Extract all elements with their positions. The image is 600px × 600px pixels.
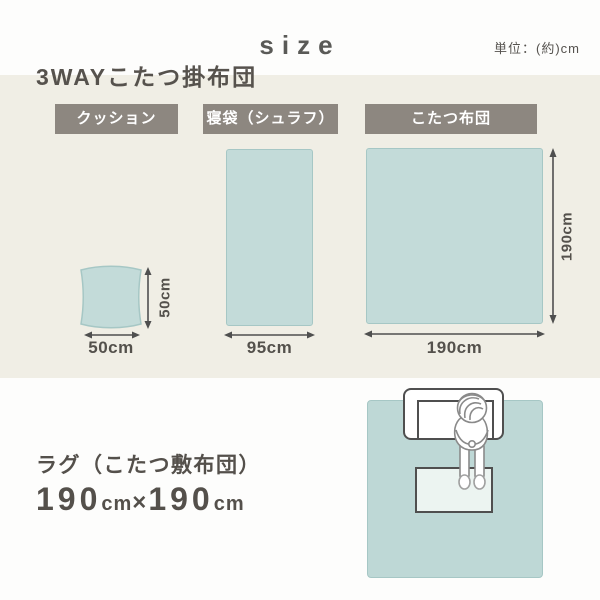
cushion-illustration bbox=[77, 265, 145, 329]
sleeping-bag-illustration bbox=[226, 149, 313, 326]
sleeping-bag-width-dimension: 95cm bbox=[226, 338, 313, 358]
rug-height-unit: cm bbox=[214, 493, 245, 515]
futon-height-dimension-arrow bbox=[548, 148, 558, 324]
rug-width-value: 190 bbox=[36, 481, 101, 517]
rug-size-separator: × bbox=[132, 489, 148, 516]
kotatsu-futon-label-badge: こたつ布団 bbox=[365, 104, 537, 134]
unit-note: 単位：(約)cm bbox=[494, 38, 580, 57]
futon-height-dimension: 190cm bbox=[559, 207, 576, 267]
kotatsu-futon-illustration bbox=[366, 148, 543, 324]
rug-section-heading: ラグ（こたつ敷布団） bbox=[36, 449, 261, 479]
person-sitting-illustration bbox=[443, 390, 501, 492]
size-infographic-page: size 単位：(約)cm 3WAYこたつ掛布団 クッション 寝袋（シュラフ） … bbox=[0, 0, 600, 600]
cushion-label-badge: クッション bbox=[55, 104, 178, 134]
futon-width-dimension: 190cm bbox=[366, 338, 543, 358]
cushion-height-dimension: 50cm bbox=[157, 268, 174, 328]
cushion-height-dimension-arrow bbox=[143, 267, 153, 329]
rug-width-unit: cm bbox=[101, 493, 132, 515]
rug-height-value: 190 bbox=[148, 481, 213, 517]
futon-section-heading: 3WAYこたつ掛布団 bbox=[36, 58, 257, 92]
cushion-width-dimension: 50cm bbox=[83, 338, 139, 358]
sleeping-bag-label-badge: 寝袋（シュラフ） bbox=[203, 104, 338, 134]
rug-size-text: 190cm×190cm bbox=[36, 481, 245, 518]
